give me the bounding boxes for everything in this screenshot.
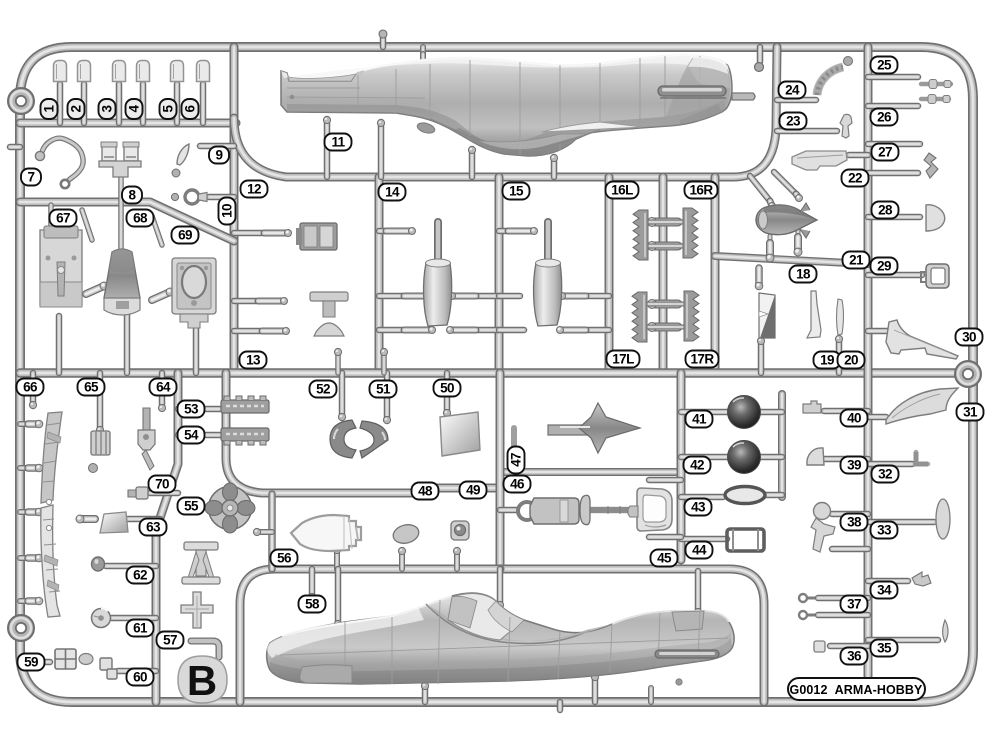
svg-text:34: 34: [877, 583, 892, 598]
svg-text:23: 23: [786, 114, 801, 129]
svg-text:58: 58: [305, 597, 320, 612]
svg-text:21: 21: [849, 253, 864, 268]
svg-text:44: 44: [692, 543, 707, 558]
svg-text:51: 51: [376, 382, 391, 397]
svg-text:57: 57: [163, 633, 177, 648]
svg-text:5: 5: [161, 104, 176, 112]
svg-text:B: B: [187, 657, 217, 704]
svg-text:4: 4: [127, 104, 142, 112]
svg-text:16L: 16L: [611, 183, 633, 198]
svg-text:24: 24: [785, 83, 800, 98]
svg-text:56: 56: [277, 551, 292, 566]
svg-text:17R: 17R: [691, 352, 715, 367]
svg-text:55: 55: [184, 499, 199, 514]
svg-text:60: 60: [133, 670, 147, 685]
svg-text:8: 8: [129, 188, 137, 203]
svg-text:63: 63: [146, 520, 161, 535]
svg-text:54: 54: [184, 428, 199, 443]
svg-text:65: 65: [84, 380, 99, 395]
svg-text:53: 53: [184, 402, 199, 417]
svg-text:64: 64: [156, 380, 171, 395]
svg-text:59: 59: [24, 655, 38, 670]
svg-text:3: 3: [100, 104, 115, 112]
svg-text:1: 1: [42, 104, 57, 112]
svg-text:35: 35: [877, 641, 892, 656]
svg-text:42: 42: [690, 458, 704, 473]
svg-text:45: 45: [657, 551, 672, 566]
svg-text:32: 32: [878, 467, 892, 482]
svg-text:30: 30: [962, 330, 976, 345]
svg-text:49: 49: [466, 483, 480, 498]
svg-text:7: 7: [28, 170, 35, 185]
svg-text:37: 37: [847, 597, 861, 612]
svg-text:67: 67: [56, 211, 70, 226]
svg-text:50: 50: [440, 381, 454, 396]
svg-text:19: 19: [820, 353, 834, 368]
svg-text:17L: 17L: [612, 352, 634, 367]
svg-text:41: 41: [692, 412, 707, 427]
svg-text:26: 26: [877, 110, 892, 125]
svg-text:68: 68: [133, 211, 148, 226]
svg-text:10: 10: [220, 204, 235, 218]
svg-text:39: 39: [847, 458, 861, 473]
svg-text:36: 36: [847, 649, 862, 664]
svg-text:69: 69: [178, 228, 192, 243]
svg-text:15: 15: [509, 184, 524, 199]
svg-text:62: 62: [133, 568, 147, 583]
svg-text:G0012 ARMA-HOBBY: G0012 ARMA-HOBBY: [790, 683, 924, 697]
svg-text:16R: 16R: [690, 183, 714, 198]
svg-text:28: 28: [878, 203, 893, 218]
svg-text:13: 13: [246, 353, 261, 368]
svg-text:29: 29: [877, 259, 891, 274]
svg-text:61: 61: [133, 621, 148, 636]
svg-text:14: 14: [385, 185, 400, 200]
svg-text:33: 33: [877, 523, 892, 538]
svg-text:43: 43: [691, 500, 706, 515]
svg-text:48: 48: [418, 484, 433, 499]
svg-text:18: 18: [796, 267, 811, 282]
svg-text:31: 31: [963, 405, 978, 420]
svg-text:9: 9: [216, 148, 223, 163]
svg-text:22: 22: [848, 171, 862, 186]
svg-text:25: 25: [877, 58, 892, 73]
svg-text:40: 40: [847, 411, 861, 426]
svg-text:6: 6: [183, 104, 198, 112]
svg-text:52: 52: [316, 382, 330, 397]
svg-text:38: 38: [847, 515, 862, 530]
svg-text:2: 2: [69, 105, 84, 112]
svg-text:70: 70: [155, 477, 169, 492]
svg-text:47: 47: [509, 453, 524, 467]
svg-text:66: 66: [23, 380, 38, 395]
svg-text:20: 20: [844, 353, 858, 368]
svg-text:27: 27: [878, 145, 892, 160]
svg-text:11: 11: [331, 135, 345, 150]
svg-text:46: 46: [510, 477, 525, 492]
svg-text:12: 12: [247, 182, 261, 197]
